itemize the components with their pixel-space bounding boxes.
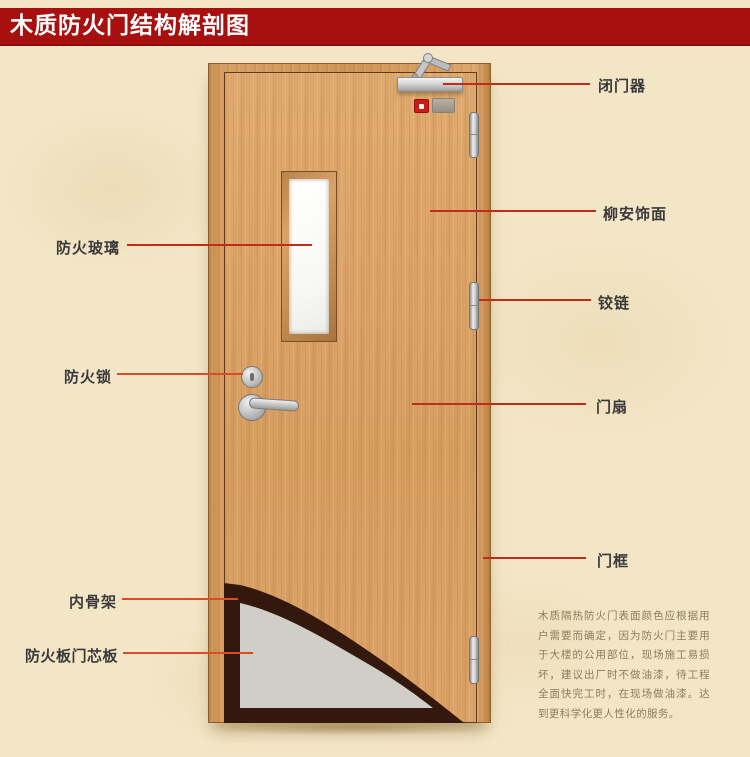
infographic-canvas: 木质防火门结构解剖图 闭门器 柳安饰面 铰链 门扇 门框 防火玻璃 防火: [0, 0, 750, 757]
alarm-indicator-icon: [414, 99, 429, 113]
cutaway-section: [224, 575, 477, 723]
title-banner: 木质防火门结构解剖图: [0, 8, 750, 46]
callout-label-fire-board-core: 防火板门芯板: [20, 645, 118, 666]
fire-lock-escutcheon: [241, 366, 263, 388]
hinge-top: [469, 112, 479, 158]
callout-label-door-leaf: 门扇: [596, 396, 628, 417]
fire-glass-window: [281, 171, 337, 342]
glass-pane: [289, 179, 329, 334]
callout-line-lauan-veneer: [430, 210, 596, 212]
callout-line-door-leaf: [412, 403, 586, 405]
callout-line-fire-lock: [117, 373, 243, 375]
callout-label-fire-lock: 防火锁: [40, 366, 112, 387]
callout-line-hinge: [479, 299, 591, 301]
electric-box: [432, 98, 455, 113]
callout-line-fire-board-core: [123, 652, 253, 654]
callout-line-fire-glass: [127, 244, 312, 246]
hinge-middle: [469, 282, 479, 330]
hinge-bottom: [469, 636, 479, 684]
callout-label-door-frame: 门框: [597, 550, 629, 571]
fire-board-core-shape: [240, 603, 433, 708]
callout-line-door-frame: [483, 557, 586, 559]
door-closer-arm-icon: [404, 50, 460, 80]
callout-line-inner-skeleton: [122, 598, 238, 600]
callout-line-door-closer: [443, 83, 590, 85]
callout-label-door-closer: 闭门器: [598, 75, 646, 96]
callout-label-fire-glass: 防火玻璃: [34, 237, 120, 258]
page-title: 木质防火门结构解剖图: [0, 8, 750, 44]
description-text: 木质隔热防火门表面颜色应根据用户需要而确定，因为防火门主要用于大楼的公用部位，现…: [538, 607, 710, 724]
callout-label-hinge: 铰链: [598, 292, 630, 313]
callout-label-lauan-veneer: 柳安饰面: [603, 203, 667, 224]
callout-label-inner-skeleton: 内骨架: [40, 591, 117, 612]
